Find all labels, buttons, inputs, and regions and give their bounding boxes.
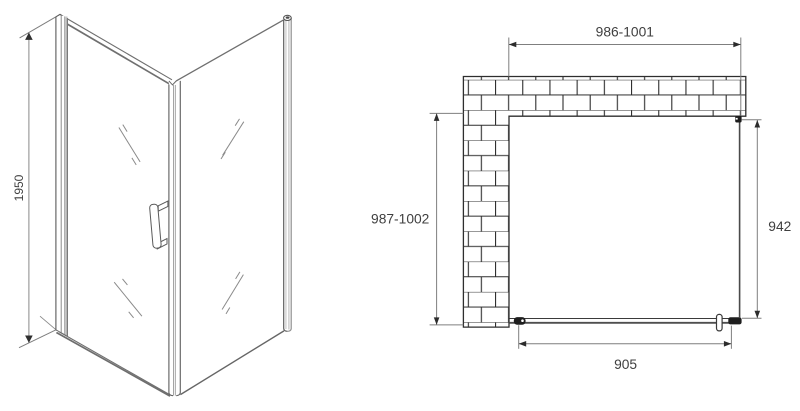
svg-text:987-1002: 987-1002 [371, 211, 429, 226]
svg-text:905: 905 [614, 357, 637, 372]
svg-text:1950: 1950 [12, 174, 26, 201]
svg-text:986-1001: 986-1001 [596, 25, 654, 40]
svg-text:942: 942 [768, 219, 791, 234]
